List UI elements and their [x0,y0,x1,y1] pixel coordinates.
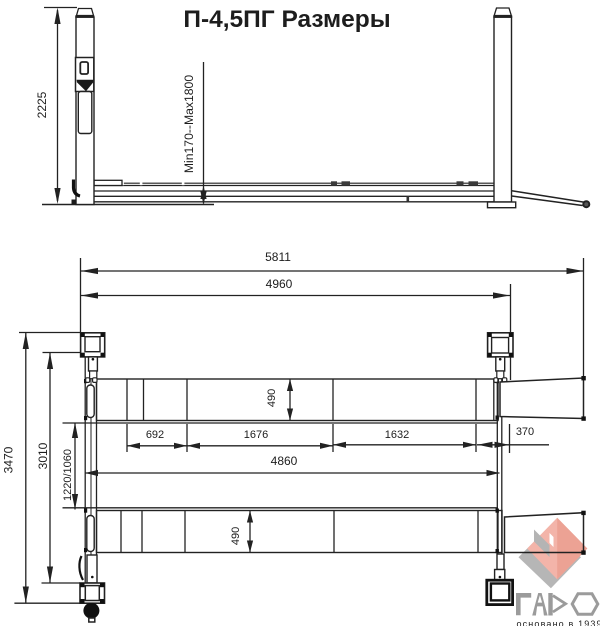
svg-text:основано в 1939: основано в 1939 [517,619,600,626]
svg-text:1632: 1632 [385,429,409,441]
svg-text:490: 490 [266,389,278,407]
svg-text:2225: 2225 [35,91,49,118]
svg-text:370: 370 [516,426,534,438]
svg-text:692: 692 [146,429,164,441]
svg-text:4860: 4860 [271,454,298,468]
svg-text:1676: 1676 [244,429,268,441]
svg-text:3470: 3470 [2,446,16,473]
svg-text:4960: 4960 [266,277,293,291]
svg-text:П-4,5ПГ Размеры: П-4,5ПГ Размеры [183,6,390,33]
svg-text:1220/1060: 1220/1060 [62,449,74,501]
svg-text:3010: 3010 [36,442,50,469]
svg-text:Min170--Max1800: Min170--Max1800 [182,75,196,173]
svg-text:490: 490 [230,527,242,545]
svg-text:5811: 5811 [265,250,291,264]
